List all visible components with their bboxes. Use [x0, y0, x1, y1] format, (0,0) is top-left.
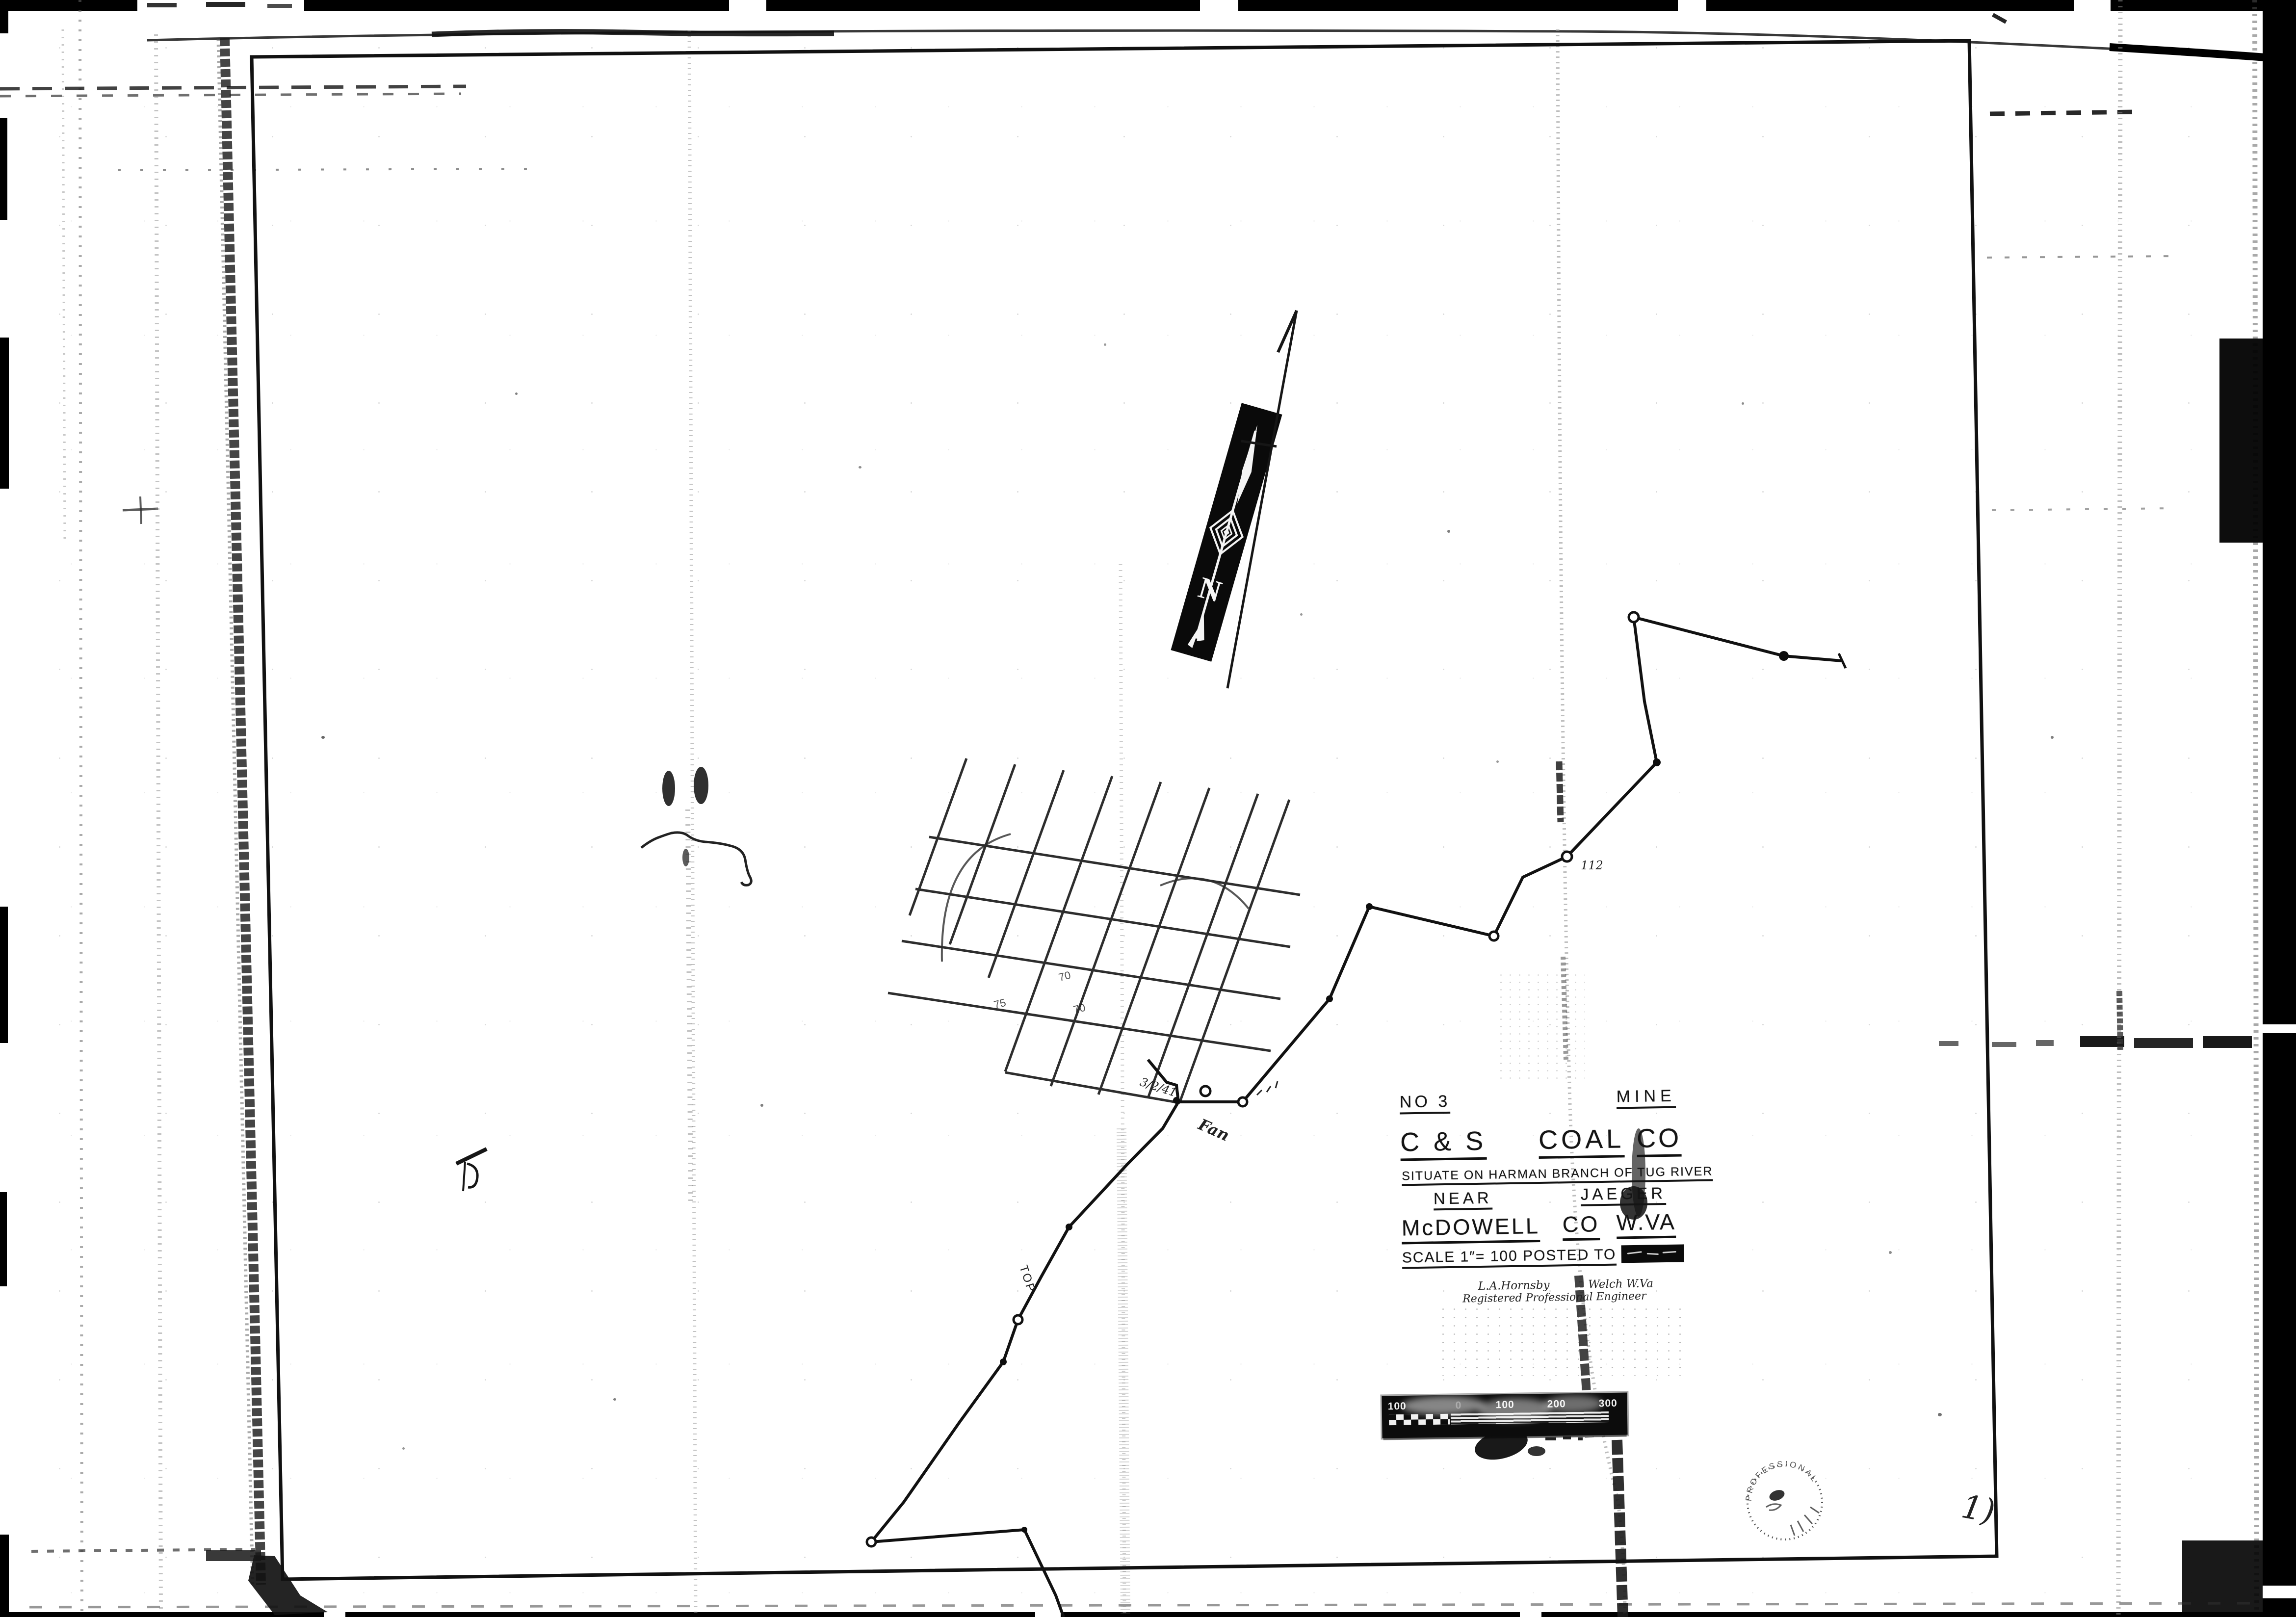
scribble-75-mark — [456, 1149, 487, 1191]
dust-speck — [515, 392, 518, 395]
scan-smudge — [1401, 1396, 1485, 1415]
top-label: TOP — [1017, 1264, 1038, 1295]
film-edge-bottom — [0, 1603, 2296, 1617]
mine-number: NO 3 — [1400, 1092, 1451, 1112]
dust-speck — [613, 1398, 616, 1401]
map-artwork-layer: N — [0, 0, 2296, 1617]
state-name: W.VA — [1616, 1209, 1676, 1236]
signature-city: Welch W.Va — [1588, 1277, 1653, 1291]
boundary-traverse — [867, 612, 1846, 1617]
grid-number-1: 70 — [1057, 969, 1072, 984]
scale-bar: 100 0 100 200 300 — [1382, 1393, 1627, 1438]
dust-speck — [1889, 1251, 1892, 1254]
crease-right — [1558, 29, 1647, 1617]
redaction-box — [1621, 1244, 1684, 1263]
dust-speck — [1742, 402, 1744, 405]
company-part2-text: COAL — [1539, 1124, 1625, 1159]
state-name-text: W.VA — [1616, 1209, 1676, 1239]
situate-line-text: SITUATE ON HARMAN BRANCH OF TUG RIVER — [1402, 1164, 1713, 1186]
film-edge-left — [0, 0, 82, 1617]
grid-number-2: 70 — [1072, 1001, 1087, 1016]
county-name: McDOWELL — [1401, 1213, 1540, 1241]
company-part3-text: CO — [1637, 1123, 1682, 1157]
company-part1-text: C & S — [1400, 1126, 1487, 1161]
place-name: JAEGER — [1581, 1184, 1667, 1204]
near-word-text: NEAR — [1434, 1189, 1492, 1211]
film-edge-top — [0, 0, 2296, 11]
scan-smudge — [1543, 1395, 1602, 1413]
engineer-seal: PROFESSIONAL — [1744, 1459, 1822, 1539]
title-block: NO 3 MINE C & S COAL CO SITUATE ON HARMA… — [1396, 1084, 1684, 1314]
county-name-text: McDOWELL — [1401, 1213, 1540, 1244]
crease-left — [662, 30, 708, 1614]
dust-speck — [321, 736, 325, 739]
north-arrow: N — [1171, 311, 1297, 688]
grid-number-3: 75 — [992, 996, 1007, 1011]
company-name-part2: COAL — [1539, 1123, 1625, 1155]
scanned-mine-map: N — [0, 0, 2296, 1617]
dust-speck — [402, 1447, 405, 1450]
faded-stamp-noise — [1437, 1305, 1683, 1376]
mine-workings-grid — [888, 758, 1300, 1103]
dust-speck — [859, 466, 861, 469]
dust-speck — [2051, 736, 2054, 739]
mine-word-text: MINE — [1616, 1087, 1676, 1109]
dust-speck — [1496, 760, 1499, 763]
corner-mark: 1) — [1958, 1487, 1998, 1531]
scale-posted-line: SCALE 1″= 100 POSTED TO — [1402, 1244, 1684, 1266]
dust-speck — [1447, 530, 1450, 533]
near-word: NEAR — [1434, 1189, 1492, 1208]
signature-title-text: Registered Professional Engineer — [1462, 1290, 1646, 1305]
place-name-text: JAEGER — [1581, 1184, 1667, 1206]
station-label: 112 — [1581, 859, 1603, 872]
scale-checker-strip — [1389, 1414, 1450, 1426]
signature-name: L.A.Hornsby — [1478, 1279, 1550, 1293]
county-word-text: CO — [1562, 1211, 1599, 1241]
situate-line: SITUATE ON HARMAN BRANCH OF TUG RIVER — [1402, 1164, 1713, 1183]
dust-speck — [760, 1104, 763, 1107]
crease-noise — [1496, 971, 1585, 1079]
dust-speck — [1104, 343, 1106, 346]
company-name-part3: CO — [1637, 1122, 1682, 1153]
film-edge-right — [2182, 0, 2296, 1617]
dust-speck — [1938, 1413, 1942, 1416]
fan-label: Fan — [1195, 1115, 1232, 1145]
signature-title: Registered Professional Engineer — [1462, 1290, 1646, 1305]
crease-center — [1121, 564, 1125, 1614]
company-name-part1: C & S — [1400, 1126, 1487, 1158]
creek-line — [641, 833, 751, 886]
dust-speck — [1300, 613, 1303, 616]
mine-number-text: NO 3 — [1400, 1092, 1451, 1115]
county-word: CO — [1562, 1211, 1599, 1237]
scale-posted-text: SCALE 1″= 100 POSTED TO — [1402, 1247, 1617, 1269]
mine-word: MINE — [1616, 1087, 1676, 1107]
